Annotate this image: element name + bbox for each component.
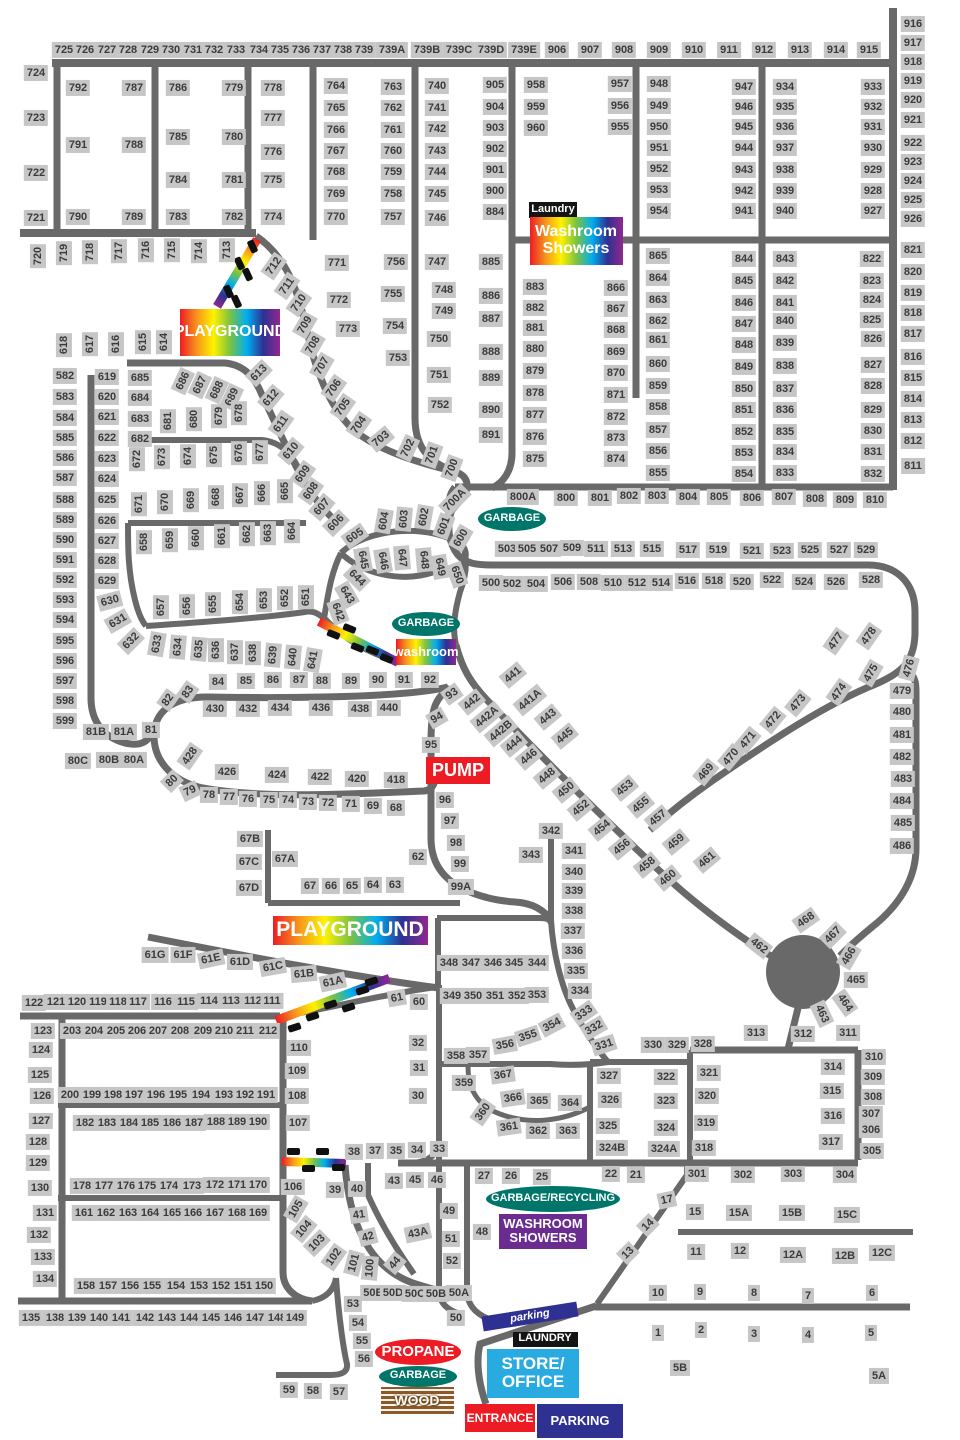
label-text: washroom xyxy=(394,645,459,659)
label-text: Laundry xyxy=(531,204,574,216)
label-text: OFFICE xyxy=(502,1373,564,1391)
labels-layer: PLAYGROUNDLaundryWashroomShowersGARBAGEG… xyxy=(0,0,960,1440)
label-text: PUMP xyxy=(432,761,484,780)
label-store-office: STORE/OFFICE xyxy=(487,1349,579,1398)
label-entrance: ENTRANCE xyxy=(465,1404,535,1432)
label-laundry: LAUNDRY xyxy=(513,1332,578,1347)
label-washroom: washroom xyxy=(396,639,456,665)
label-text: Washroom xyxy=(535,224,617,241)
label-text: STORE/ xyxy=(502,1355,565,1373)
label-text: Showers xyxy=(543,241,610,258)
label-washroomshowers: WashroomShowers xyxy=(530,217,623,265)
label-text: PARKING xyxy=(551,1414,610,1428)
label-text: GARBAGE xyxy=(484,513,540,525)
label-text: parking xyxy=(509,1307,550,1325)
label-parking: parking xyxy=(481,1301,578,1331)
label-garbage-recycling: GARBAGE/RECYCLING xyxy=(486,1186,620,1212)
label-text: PLAYGROUND xyxy=(174,324,286,341)
label-text: GARBAGE/RECYCLING xyxy=(491,1193,615,1205)
campground-map: 7257267277287297307317327337347357367377… xyxy=(0,0,960,1440)
label-text: PLAYGROUND xyxy=(276,919,423,941)
label-garbage: GARBAGE xyxy=(379,1366,457,1387)
label-pump: PUMP xyxy=(426,757,490,784)
label-garbage: GARBAGE xyxy=(478,507,546,531)
label-text: GARBAGE xyxy=(390,1370,446,1382)
label-propane: PROPANE xyxy=(375,1339,461,1365)
label-text: PROPANE xyxy=(381,1344,454,1360)
label-wood: WOOD xyxy=(381,1387,454,1414)
label-text: WOOD xyxy=(394,1393,439,1408)
label-laundry: Laundry xyxy=(529,202,577,218)
label-text: WASHROOM xyxy=(503,1217,582,1231)
label-garbage: GARBAGE xyxy=(392,612,460,636)
label-text: ENTRANCE xyxy=(467,1412,534,1425)
label-playground: PLAYGROUND xyxy=(273,916,428,945)
label-playground: PLAYGROUND xyxy=(180,309,280,356)
label-text: GARBAGE xyxy=(398,618,454,630)
label-text: SHOWERS xyxy=(509,1231,576,1245)
label-washroomshowers: WASHROOMSHOWERS xyxy=(499,1214,587,1249)
label-parking: PARKING xyxy=(537,1404,623,1438)
label-text: LAUNDRY xyxy=(518,1333,571,1345)
